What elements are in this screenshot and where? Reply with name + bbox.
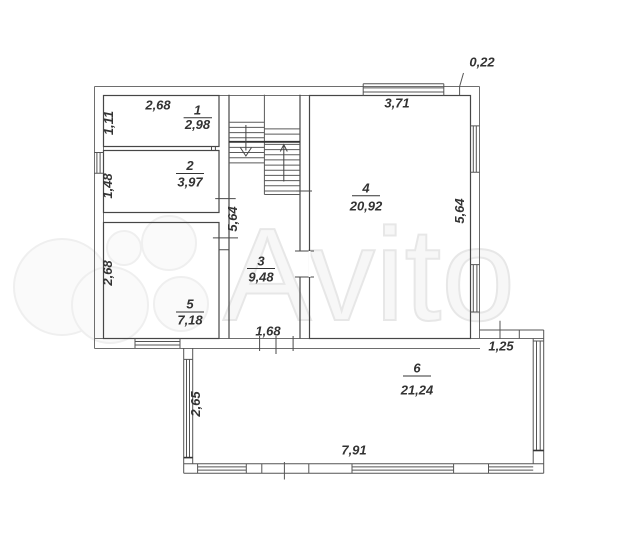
- svg-text:2,68: 2,68: [100, 260, 115, 287]
- svg-text:2,68: 2,68: [144, 98, 171, 113]
- svg-text:5,64: 5,64: [225, 206, 240, 232]
- svg-text:21,24: 21,24: [400, 383, 434, 398]
- svg-text:1: 1: [194, 103, 201, 118]
- svg-text:7,18: 7,18: [177, 313, 203, 328]
- svg-text:2: 2: [185, 158, 194, 173]
- svg-text:1,25: 1,25: [488, 339, 514, 354]
- svg-text:5,64: 5,64: [452, 198, 467, 224]
- svg-text:2,65: 2,65: [188, 391, 203, 418]
- svg-text:1,48: 1,48: [100, 173, 115, 199]
- svg-text:4: 4: [361, 181, 370, 196]
- svg-text:3,97: 3,97: [177, 175, 203, 190]
- svg-text:5: 5: [186, 297, 194, 312]
- svg-text:1,11: 1,11: [101, 111, 116, 135]
- svg-text:3: 3: [257, 254, 265, 269]
- svg-text:2,98: 2,98: [184, 117, 211, 132]
- svg-text:3,71: 3,71: [384, 96, 409, 111]
- svg-text:1,68: 1,68: [255, 324, 281, 339]
- svg-text:20,92: 20,92: [349, 199, 383, 214]
- svg-text:9,48: 9,48: [248, 270, 274, 285]
- svg-text:0,22: 0,22: [469, 55, 495, 70]
- svg-text:7,91: 7,91: [341, 443, 366, 458]
- svg-text:6: 6: [413, 361, 421, 376]
